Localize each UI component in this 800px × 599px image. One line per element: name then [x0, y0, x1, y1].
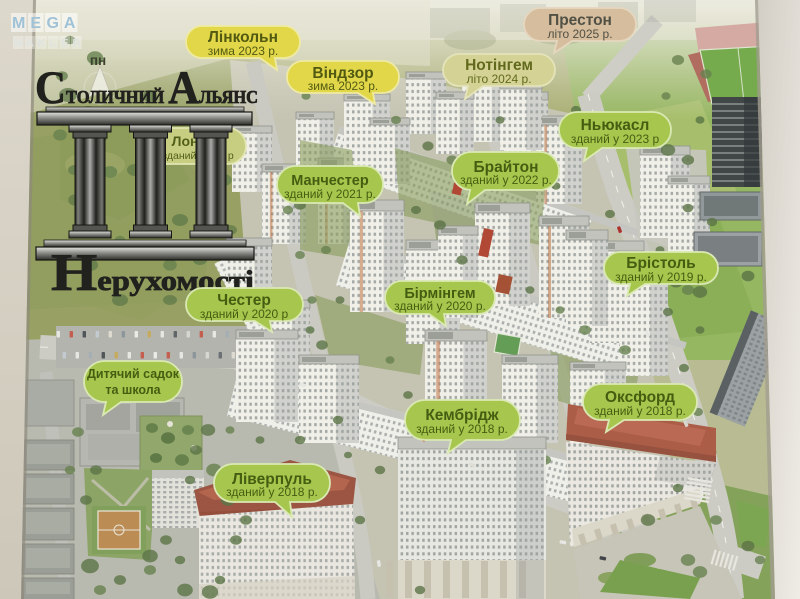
svg-text:M: M	[14, 38, 23, 50]
svg-text:G: G	[46, 15, 58, 32]
svg-text:A: A	[26, 38, 34, 50]
svg-text:R: R	[72, 38, 80, 50]
svg-text:E: E	[30, 15, 41, 32]
svg-text:L: L	[50, 38, 57, 50]
svg-text:M: M	[12, 15, 25, 32]
svg-text:E: E	[61, 38, 68, 50]
svg-text:A: A	[64, 15, 76, 32]
svg-text:K: K	[38, 38, 46, 50]
